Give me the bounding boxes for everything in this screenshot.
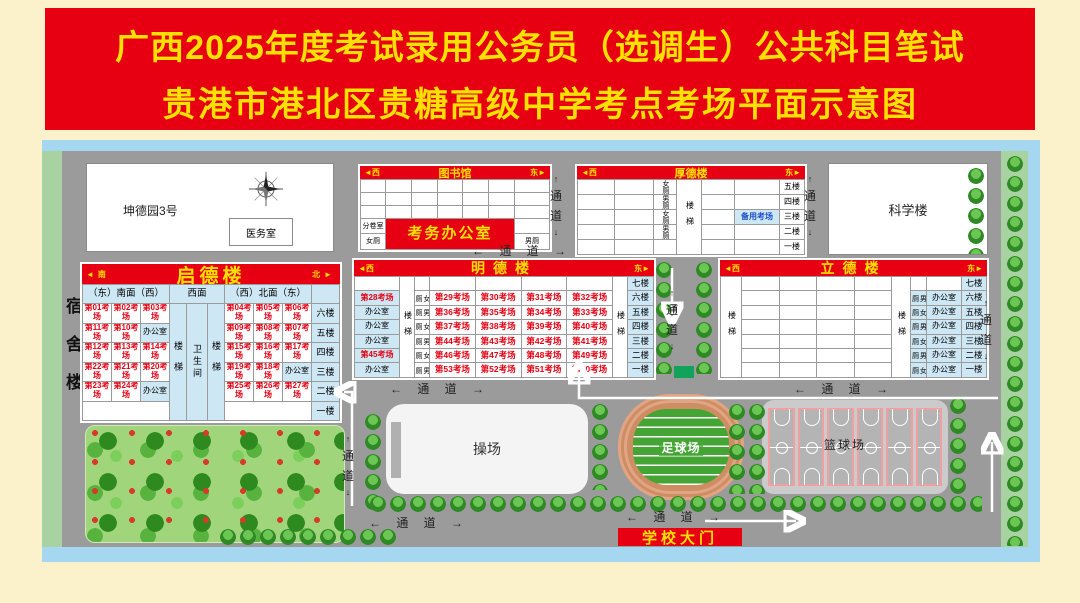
- library-room: [386, 193, 411, 205]
- floor-label: 一楼: [962, 363, 986, 376]
- empty-cell: [415, 277, 429, 290]
- passage-char: 道: [980, 331, 992, 348]
- clinic-room: 医务室: [229, 218, 293, 246]
- toilet-cell: 女厕: [654, 180, 676, 194]
- passage-label-horizontal: ← 通 道 →: [380, 380, 500, 397]
- basketball-court: [768, 408, 795, 486]
- classroom-cell: [817, 320, 854, 333]
- passage-label-horizontal: ← 通 道 →: [784, 380, 904, 397]
- floor-label: 七楼: [628, 277, 653, 290]
- exam-room-cell: 第38考场: [476, 320, 521, 333]
- office-cell: 办公室: [927, 335, 961, 348]
- classroom-cell: [742, 335, 779, 348]
- stairs-cell: 楼梯: [613, 277, 627, 377]
- passage-label-vertical: ↑通道↓: [666, 288, 678, 351]
- classroom-cell: [735, 225, 779, 239]
- exam-room-cell: 第29考场: [430, 291, 475, 304]
- classroom-cell: [855, 349, 892, 362]
- podium: [674, 366, 694, 378]
- toilet-cell: 男厕: [911, 320, 926, 333]
- floor-label: 五楼: [780, 180, 804, 194]
- football-pitch: 足球场: [633, 409, 729, 485]
- office-cell: 办公室: [927, 363, 961, 376]
- exam-room-cell: 第51考场: [522, 363, 567, 376]
- exam-room-cell: 第36考场: [430, 306, 475, 319]
- classroom-cell: [615, 210, 653, 224]
- exam-room-cell: 第10考场: [112, 324, 140, 343]
- classroom-cell: [817, 363, 854, 376]
- floor-label: 五楼: [628, 306, 653, 319]
- passage-char: 通: [550, 187, 562, 204]
- exam-room-cell: 第03考场: [141, 304, 169, 323]
- library-room: [489, 180, 514, 192]
- mingde-building: ◄西 明德楼 东► 七楼第28考场女厕第29考场第30考场第31考场第32考场六…: [352, 258, 656, 380]
- floor-label: 五楼: [312, 324, 339, 343]
- office-cell: 办公室: [927, 320, 961, 333]
- exam-room-cell: 第01考场: [83, 304, 111, 323]
- west-marker: ◄西: [581, 167, 597, 178]
- toilet-cell: 女厕: [911, 335, 926, 348]
- stairs-cell: 楼梯: [677, 180, 701, 254]
- classroom-cell: [578, 195, 614, 209]
- down-arrow: ↓: [554, 227, 559, 237]
- women-toilet-cell: 女厕: [361, 234, 385, 249]
- down-arrow: ↓: [984, 351, 989, 361]
- library-room: [463, 206, 488, 218]
- houde-name: 厚德楼: [675, 165, 708, 181]
- floor-label: 二楼: [780, 225, 804, 239]
- classroom-cell: [742, 320, 779, 333]
- exam-room-cell: 第39考场: [522, 320, 567, 333]
- floor-label: 三楼: [780, 210, 804, 224]
- classroom-cell: [615, 195, 653, 209]
- office-cell: 办公室: [927, 349, 961, 362]
- classroom-cell: [855, 363, 892, 376]
- office-cell: 办公室: [283, 363, 311, 382]
- passage-char: 道: [342, 467, 354, 484]
- exam-room-cell: 第05考场: [254, 304, 282, 323]
- east-marker: 东►: [530, 167, 546, 178]
- up-arrow: ↑: [346, 434, 351, 444]
- up-arrow: ↑: [808, 174, 813, 184]
- garden: [85, 425, 345, 543]
- floor-label: 二楼: [312, 382, 339, 401]
- toilet-cell: 男厕: [654, 195, 676, 209]
- exam-room-cell: 第04考场: [225, 304, 253, 323]
- north-marker: 北►: [312, 269, 336, 280]
- down-arrow: ↓: [808, 227, 813, 237]
- office-cell: 办公室: [355, 306, 399, 319]
- kundeyuan-building: 坤德园3号 医务室: [86, 163, 334, 252]
- passage-char: 通: [980, 311, 992, 328]
- stairs-cell: 楼梯: [208, 304, 224, 420]
- east-marker: 东►: [634, 263, 650, 274]
- classroom-cell: [817, 349, 854, 362]
- court-key: [804, 468, 820, 485]
- map-border-bottom: [42, 547, 1040, 562]
- exam-room-cell: 第47考场: [476, 349, 521, 362]
- poster-title: 广西2025年度考试录用公务员（选调生）公共科目笔试 贵港市港北区贵糖高级中学考…: [45, 8, 1035, 130]
- exam-room-cell: 第27考场: [283, 382, 311, 401]
- restroom-cell: 卫生间: [187, 304, 207, 420]
- exam-room-cell: 第26考场: [254, 382, 282, 401]
- floor-label: 六楼: [628, 291, 653, 304]
- floor-label: 二楼: [628, 349, 653, 362]
- qide-name: 启德楼: [176, 261, 245, 288]
- library-room: [515, 206, 549, 218]
- classroom-cell: [578, 210, 614, 224]
- library-room: [361, 180, 385, 192]
- basketball-label: 篮球场: [824, 436, 866, 453]
- court-key: [892, 409, 908, 426]
- classroom-cell: [780, 306, 817, 319]
- classroom-cell: [742, 277, 779, 290]
- classroom-cell: [742, 306, 779, 319]
- office-cell: 办公室: [141, 324, 169, 343]
- mingde-name: 明德楼: [471, 258, 537, 278]
- library-room: [438, 206, 463, 218]
- exam-venue-poster: 广西2025年度考试录用公务员（选调生）公共科目笔试 贵港市港北区贵糖高级中学考…: [0, 0, 1080, 603]
- map-border-left-green: [42, 151, 62, 547]
- library-room: [438, 193, 463, 205]
- exam-room-cell: 第11考场: [83, 324, 111, 343]
- exam-room-cell: 第34考场: [522, 306, 567, 319]
- gate-label: 学校大门: [642, 527, 718, 548]
- title-line-1: 广西2025年度考试录用公务员（选调生）公共科目笔试: [45, 20, 1035, 69]
- down-arrow: ↓: [670, 341, 675, 351]
- stairs-cell: 楼梯: [170, 304, 186, 420]
- passage-label-vertical: ↑通道↓: [980, 298, 992, 361]
- east-marker: 东►: [785, 167, 801, 178]
- classroom-cell: [702, 180, 734, 194]
- tree-icon: [590, 402, 610, 490]
- up-arrow: ↑: [554, 174, 559, 184]
- court-key: [922, 409, 938, 426]
- empty-cell: [225, 402, 311, 421]
- exam-room-cell: 第21考场: [112, 363, 140, 382]
- library-room: [386, 206, 411, 218]
- classroom-cell: [615, 225, 653, 239]
- floor-label: 一楼: [780, 240, 804, 254]
- court-key: [774, 409, 790, 426]
- lide-building: ◄西 立德楼 东► 七楼男厕办公室六楼女厕办公室五楼男厕办公室四楼女厕办公室三楼…: [718, 258, 989, 380]
- kundeyuan-label: 坤德园3号: [123, 202, 178, 219]
- library-room: [412, 206, 437, 218]
- exam-room-cell: 第17考场: [283, 343, 311, 362]
- classroom-cell: [780, 320, 817, 333]
- exam-room-cell: 第07考场: [283, 324, 311, 343]
- stairs-cell: 楼梯: [892, 277, 910, 377]
- empty-cell: [83, 402, 169, 421]
- classroom-cell: [780, 291, 817, 304]
- basketball-court: [798, 408, 825, 486]
- classroom-cell: [742, 291, 779, 304]
- classroom-cell: [702, 195, 734, 209]
- classroom-cell: [817, 291, 854, 304]
- stairs-cell: 楼梯: [400, 277, 414, 377]
- exam-room-cell: 第52考场: [476, 363, 521, 376]
- exam-room-cell: 第53考场: [430, 363, 475, 376]
- face-label-south: （东）南面（西）: [83, 285, 169, 303]
- office-cell: 办公室: [927, 291, 961, 304]
- classroom-cell: [578, 225, 614, 239]
- empty-cell: [522, 277, 567, 290]
- stairs-cell: 楼梯: [721, 277, 741, 377]
- office-cell: 办公室: [355, 363, 399, 376]
- science-label: 科学楼: [888, 200, 927, 219]
- exam-room-cell: 第02考场: [112, 304, 140, 323]
- west-marker: ◄西: [364, 167, 380, 178]
- toilet-cell: 男厕: [415, 363, 429, 376]
- court-key: [833, 468, 849, 485]
- up-arrow: ↑: [670, 288, 675, 298]
- exam-room-cell: 第12考场: [83, 343, 111, 362]
- classroom-cell: [855, 320, 892, 333]
- empty-cell: [927, 277, 961, 290]
- classroom-cell: [855, 277, 892, 290]
- classroom-cell: [702, 210, 734, 224]
- exam-room-cell: 第41考场: [567, 335, 612, 348]
- classroom-cell: [735, 240, 779, 254]
- title-line-2: 贵港市港北区贵糖高级中学考点考场平面示意图: [45, 77, 1035, 126]
- toilet-cell: 女厕: [415, 291, 429, 304]
- floor-label: 四楼: [312, 343, 339, 362]
- exam-room-cell: 第48考场: [522, 349, 567, 362]
- tree-icon: [948, 396, 968, 496]
- floor-label: 六楼: [312, 304, 339, 323]
- court-key: [774, 468, 790, 485]
- classroom-cell: [735, 180, 779, 194]
- empty-cell: [476, 277, 521, 290]
- west-marker: ◄西: [724, 263, 740, 274]
- compass-icon: [247, 170, 285, 208]
- office-cell: 办公室: [141, 382, 169, 401]
- floor-label: 四楼: [780, 195, 804, 209]
- school-gate: 学校大门: [618, 528, 742, 546]
- exam-room-cell: 第16考场: [254, 343, 282, 362]
- floor-label: 一楼: [628, 363, 653, 376]
- exam-room-cell: 第33考场: [567, 306, 612, 319]
- toilet-cell: 男厕: [415, 306, 429, 319]
- classroom-cell: [855, 306, 892, 319]
- classroom-cell: [817, 306, 854, 319]
- exam-room-cell: 第50考场: [567, 363, 612, 376]
- floor-label: 三楼: [312, 363, 339, 382]
- classroom-cell: [817, 277, 854, 290]
- floor-label: 七楼: [962, 277, 986, 290]
- passage-char: 通: [342, 447, 354, 464]
- exam-room-cell: 第08考场: [254, 324, 282, 343]
- classroom-cell: [855, 291, 892, 304]
- west-marker: ◄西: [358, 263, 374, 274]
- library-room: [463, 180, 488, 192]
- court-key: [863, 409, 879, 426]
- tree-icon: [1005, 154, 1025, 546]
- passage-label-vertical: ↑通道↓: [342, 434, 354, 497]
- library-building: ◄西 图书馆 东► 分卷室考务办公室女厕男厕: [358, 164, 552, 252]
- library-room: [412, 180, 437, 192]
- toilet-cell: 男厕: [911, 349, 926, 362]
- library-room: [489, 193, 514, 205]
- classroom-cell: [817, 335, 854, 348]
- up-arrow: ↑: [984, 298, 989, 308]
- library-room: [412, 193, 437, 205]
- basketball-court: [886, 408, 913, 486]
- library-room: [489, 206, 514, 218]
- exam-room-cell: 第06考场: [283, 304, 311, 323]
- court-key: [863, 468, 879, 485]
- toilet-cell: 男厕: [911, 291, 926, 304]
- classroom-cell: [780, 335, 817, 348]
- exam-room-cell: 第30考场: [476, 291, 521, 304]
- exam-room-cell: 第35考场: [476, 306, 521, 319]
- empty-cell: [312, 285, 339, 303]
- exam-room-cell: 第09考场: [225, 324, 253, 343]
- exam-room-cell: 第45考场: [355, 349, 399, 362]
- exam-room-cell: 第20考场: [141, 363, 169, 382]
- campus-map: 宿 舍 楼 坤德园3号 医务室 ◄西 图书馆: [42, 140, 1040, 562]
- toilet-cell: [654, 240, 676, 254]
- library-room: [515, 180, 549, 192]
- playground-stage: [391, 422, 401, 478]
- passage-char: 通: [804, 187, 816, 204]
- library-room: [463, 193, 488, 205]
- office-cell: 办公室: [355, 335, 399, 348]
- exam-room-cell: 第22考场: [83, 363, 111, 382]
- library-room: [515, 193, 549, 205]
- empty-cell: [567, 277, 612, 290]
- classroom-cell: [855, 335, 892, 348]
- lide-name: 立德楼: [821, 258, 887, 278]
- classroom-cell: [702, 225, 734, 239]
- floor-label: 四楼: [628, 320, 653, 333]
- exam-room-cell: 第49考场: [567, 349, 612, 362]
- classroom-cell: [578, 180, 614, 194]
- toilet-cell: 女厕: [911, 306, 926, 319]
- exam-room-cell: 第24考场: [112, 382, 140, 401]
- empty-cell: [515, 219, 549, 233]
- exam-room-cell: 第43考场: [476, 335, 521, 348]
- passage-char: 道: [666, 321, 678, 338]
- basketball-court: [916, 408, 943, 486]
- floor-label: 一楼: [312, 402, 339, 421]
- exam-room-cell: 第19考场: [225, 363, 253, 382]
- exam-room-cell: 第14考场: [141, 343, 169, 362]
- classroom-cell: [780, 363, 817, 376]
- passage-char: 道: [804, 207, 816, 224]
- qide-building: ◄南 启德楼 北► （东）南面（西）西面（西）北面（东）第01考场第02考场第0…: [80, 262, 342, 423]
- playground: 操场: [386, 404, 588, 494]
- court-key: [892, 468, 908, 485]
- toilet-cell: 男厕: [415, 335, 429, 348]
- spare-exam-room-cell: 备用考场: [735, 210, 779, 224]
- classroom-cell: [735, 195, 779, 209]
- exam-room-cell: 第46考场: [430, 349, 475, 362]
- science-building: 科学楼: [828, 163, 988, 255]
- football-field: 足球场: [618, 394, 744, 500]
- exam-room-cell: 第25考场: [225, 382, 253, 401]
- passage-label-horizontal: ← 通 道 →: [626, 508, 726, 525]
- toilet-cell: 女厕: [911, 363, 926, 376]
- passage-label-horizontal: ← 通 道 →: [364, 514, 474, 531]
- exam-room-cell: 第44考场: [430, 335, 475, 348]
- library-name: 图书馆: [439, 165, 472, 181]
- toilet-cell: 女厕: [415, 349, 429, 362]
- floor-label: 三楼: [628, 335, 653, 348]
- office-cell: 办公室: [355, 320, 399, 333]
- court-key: [922, 468, 938, 485]
- playground-label: 操场: [473, 439, 501, 459]
- face-label-north: （西）北面（东）: [225, 285, 311, 303]
- passage-label-vertical: ↑通道↓: [550, 174, 562, 237]
- classroom-cell: [742, 363, 779, 376]
- down-arrow: ↓: [346, 487, 351, 497]
- paper-room: 分卷室: [361, 219, 385, 233]
- exam-room-cell: 第42考场: [522, 335, 567, 348]
- east-marker: 东►: [967, 263, 983, 274]
- classroom-cell: [702, 240, 734, 254]
- exam-room-cell: 第23考场: [83, 382, 111, 401]
- library-room: [361, 193, 385, 205]
- exam-room-cell: 第13考场: [112, 343, 140, 362]
- court-key: [833, 409, 849, 426]
- exam-room-cell: 第31考场: [522, 291, 567, 304]
- face-label-west: 西面: [170, 285, 224, 303]
- south-marker: ◄南: [86, 269, 110, 280]
- exam-room-cell: 第32考场: [567, 291, 612, 304]
- empty-cell: [355, 277, 399, 290]
- exam-room-cell: 第18考场: [254, 363, 282, 382]
- toilet-cell: 女厕: [654, 210, 676, 224]
- exam-room-cell: 第15考场: [225, 343, 253, 362]
- toilet-cell: 男厕: [654, 225, 676, 239]
- passage-char: 道: [550, 207, 562, 224]
- football-label: 足球场: [659, 439, 702, 456]
- library-room: [361, 206, 385, 218]
- toilet-cell: 女厕: [415, 320, 429, 333]
- passage-label-horizontal: ← 通 道 →: [414, 242, 630, 259]
- exam-room-cell: 第37考场: [430, 320, 475, 333]
- map-border-top: [42, 140, 1040, 151]
- tree-icon: [966, 166, 986, 254]
- empty-cell: [430, 277, 475, 290]
- classroom-cell: [780, 277, 817, 290]
- library-room: [438, 180, 463, 192]
- empty-cell: [911, 277, 926, 290]
- map-border-right: [1028, 140, 1040, 562]
- exam-room-cell: 第28考场: [355, 291, 399, 304]
- passage-char: 通: [666, 301, 678, 318]
- classroom-cell: [780, 349, 817, 362]
- passage-label-vertical: ↑通道↓: [804, 174, 816, 237]
- court-key: [804, 409, 820, 426]
- exam-room-cell: 第40考场: [567, 320, 612, 333]
- classroom-cell: [742, 349, 779, 362]
- tree-icon: [727, 402, 767, 494]
- library-room: [386, 180, 411, 192]
- classroom-cell: [615, 180, 653, 194]
- office-cell: 办公室: [927, 306, 961, 319]
- tree-icon: [694, 260, 714, 374]
